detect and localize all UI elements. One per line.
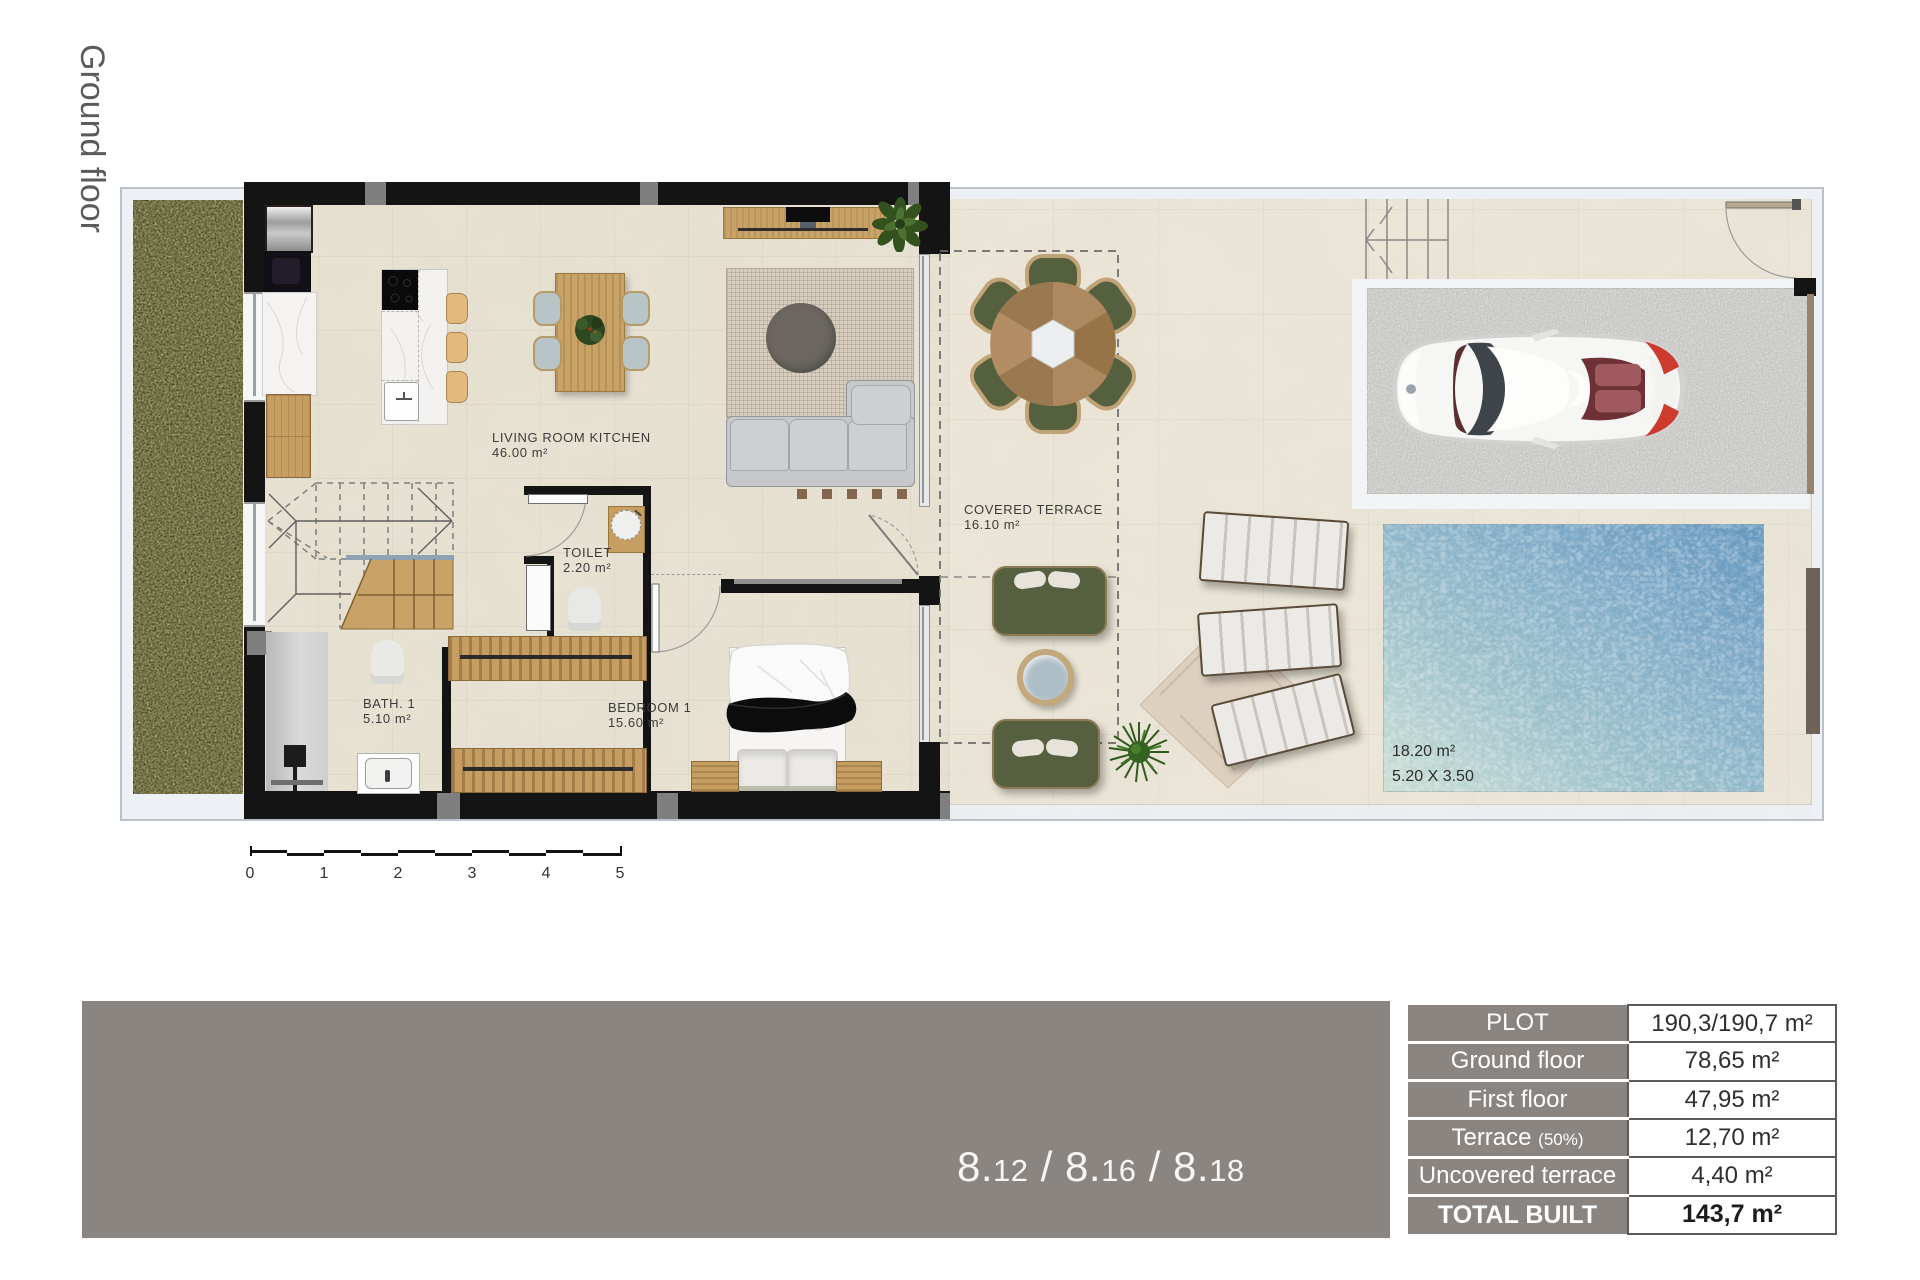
- svg-text:2: 2: [394, 865, 403, 882]
- svg-text:0: 0: [246, 865, 255, 882]
- svg-text:5: 5: [616, 865, 625, 882]
- svg-text:4: 4: [542, 865, 551, 882]
- svg-text:3: 3: [468, 865, 477, 882]
- svg-text:1: 1: [320, 865, 329, 882]
